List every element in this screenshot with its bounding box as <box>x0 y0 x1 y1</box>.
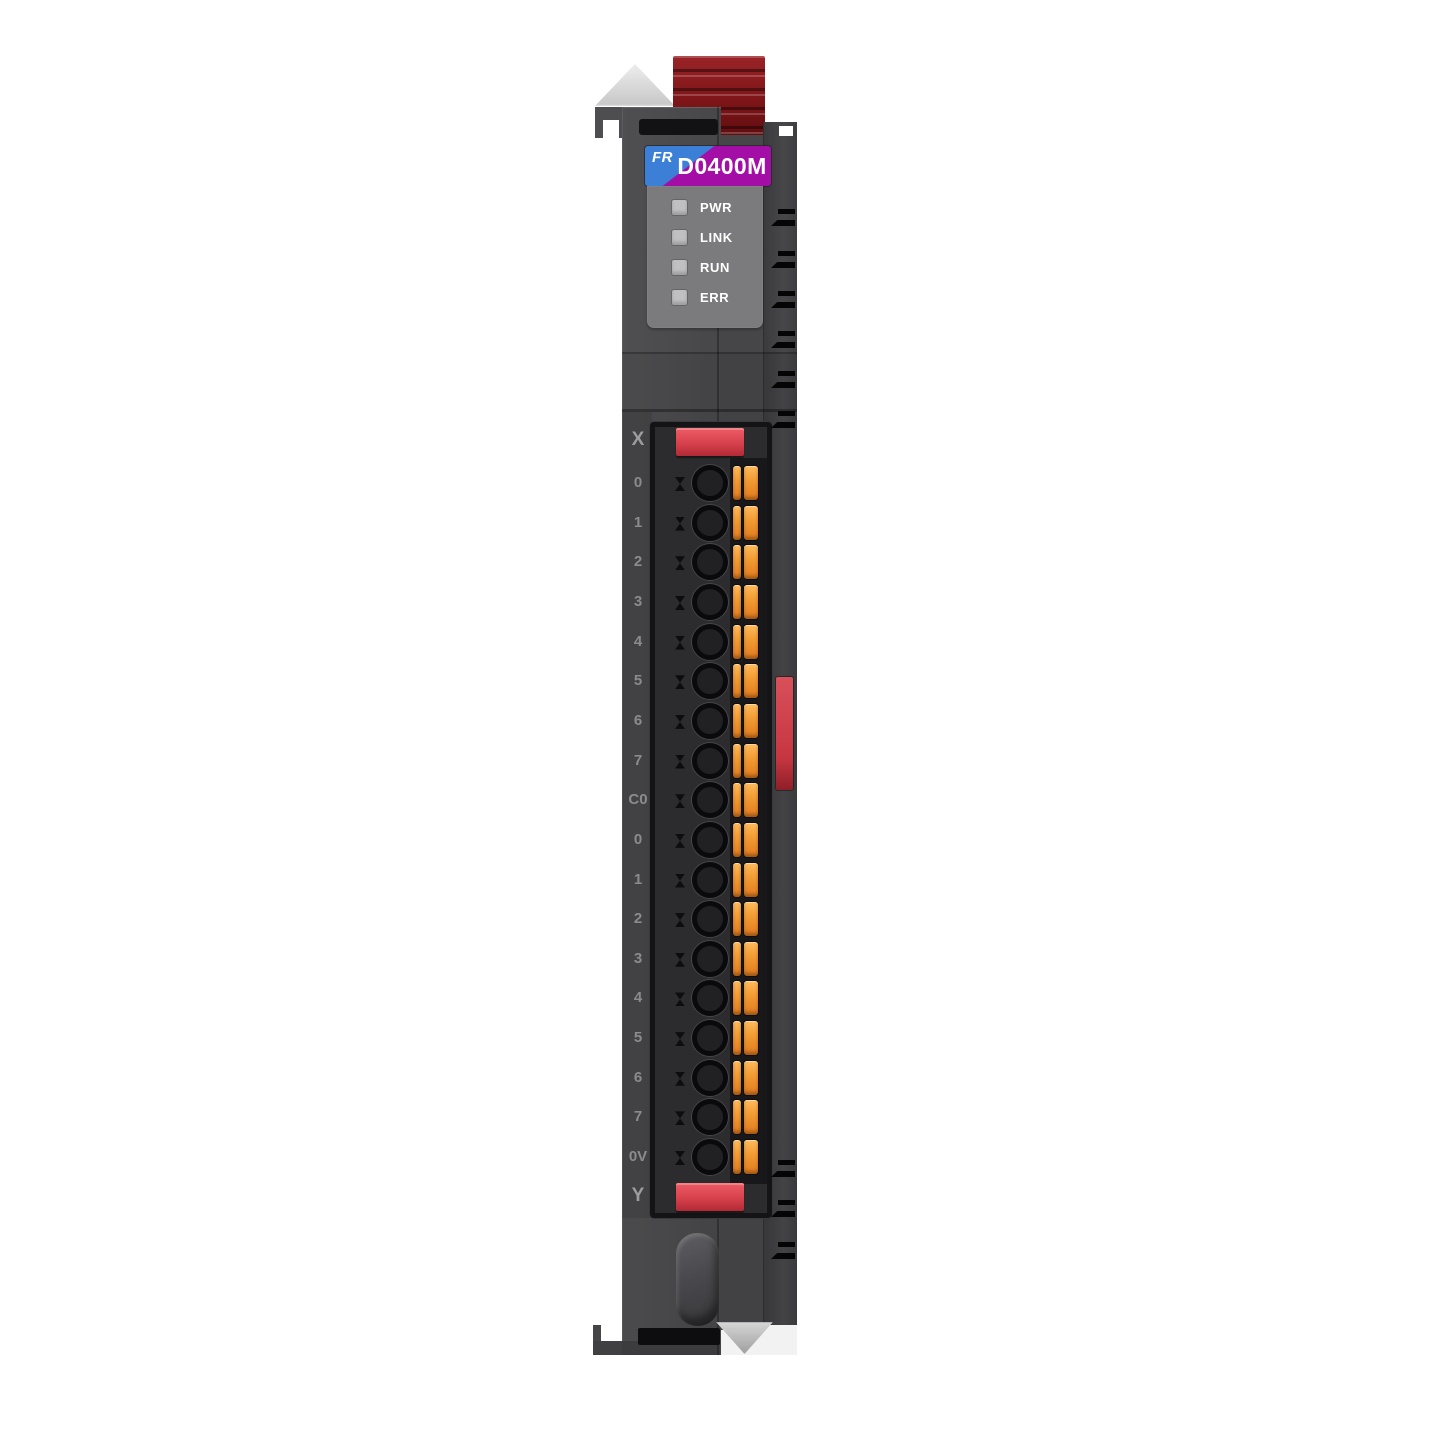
wire-lever-wide <box>744 625 758 659</box>
wire-lever-narrow <box>733 1140 741 1174</box>
wire-lever-wide <box>744 1061 758 1095</box>
terminal-hole <box>692 743 728 779</box>
wire-lever-wide <box>744 664 758 698</box>
wire-lever-wide <box>744 783 758 817</box>
vent-slot <box>778 251 795 256</box>
wire-lever-narrow <box>733 783 741 817</box>
wire-lever-narrow <box>733 506 741 540</box>
terminal-hole <box>692 584 728 620</box>
wire-lever-wide <box>744 1140 758 1174</box>
vent-slot <box>778 371 795 376</box>
terminal-clip-top <box>676 428 744 456</box>
wire-lever-narrow <box>733 466 741 500</box>
wire-lever-narrow <box>733 823 741 857</box>
wire-lever-narrow <box>733 981 741 1015</box>
input-section-label: X <box>624 429 652 451</box>
terminal-label: 6 <box>624 1068 652 1088</box>
terminal-clip-bottom <box>676 1183 744 1211</box>
terminal-hole <box>692 782 728 818</box>
terminal-hole <box>692 941 728 977</box>
led-indicator <box>672 230 687 245</box>
locking-lever <box>676 1233 719 1326</box>
terminal-hole <box>692 862 728 898</box>
led-row: ERR <box>647 290 763 306</box>
vent-slot <box>778 1160 795 1165</box>
brand-label: FR <box>652 149 673 166</box>
wire-lever-narrow <box>733 1061 741 1095</box>
wire-lever-narrow <box>733 664 741 698</box>
terminal-label: 3 <box>624 949 652 969</box>
wire-lever-wide <box>744 981 758 1015</box>
vent-slot <box>778 291 795 296</box>
led-indicator <box>672 290 687 305</box>
bottom-left-notch <box>601 1325 622 1341</box>
wire-lever-wide <box>744 704 758 738</box>
terminal-label: 3 <box>624 592 652 612</box>
terminal-label: 4 <box>624 988 652 1008</box>
wire-lever-wide <box>744 1021 758 1055</box>
terminal-label: 7 <box>624 751 652 771</box>
wire-lever-narrow <box>733 1100 741 1134</box>
plc-io-module-render: FR D0400M PWRLINKRUNERR X Y 01234567C001… <box>0 0 1440 1440</box>
terminal-label-column <box>622 412 652 1218</box>
led-label: RUN <box>700 260 730 275</box>
wire-lever-wide <box>744 863 758 897</box>
terminal-hole <box>692 901 728 937</box>
terminal-hole <box>692 1139 728 1175</box>
terminal-label: C0 <box>624 790 652 810</box>
wire-lever-wide <box>744 545 758 579</box>
bottom-vent-slot <box>638 1328 720 1345</box>
terminal-hole <box>692 703 728 739</box>
top-left-notch <box>603 120 619 138</box>
wire-lever-wide <box>744 506 758 540</box>
wire-lever-wide <box>744 942 758 976</box>
terminal-hole <box>692 1060 728 1096</box>
wire-lever-wide <box>744 902 758 936</box>
wire-lever-narrow <box>733 863 741 897</box>
led-row: RUN <box>647 260 763 276</box>
terminal-hole <box>692 822 728 858</box>
output-section-label: Y <box>624 1185 652 1207</box>
model-name-plate: FR D0400M <box>645 146 771 186</box>
terminal-label: 2 <box>624 552 652 572</box>
terminal-label: 0 <box>624 830 652 850</box>
terminal-hole <box>692 624 728 660</box>
led-label: ERR <box>700 290 729 305</box>
led-label: LINK <box>700 230 733 245</box>
led-indicator <box>672 200 687 215</box>
terminal-hole <box>692 505 728 541</box>
vent-slot <box>778 1200 795 1205</box>
vent-slot <box>778 331 795 336</box>
wire-lever-wide <box>744 466 758 500</box>
led-row: LINK <box>647 230 763 246</box>
wire-lever-narrow <box>733 585 741 619</box>
top-right-notch <box>779 126 793 136</box>
wire-lever-narrow <box>733 704 741 738</box>
top-shadow-arrow <box>595 64 675 106</box>
wire-lever-wide <box>744 823 758 857</box>
vent-slot <box>778 1242 795 1247</box>
wire-lever-narrow <box>733 1021 741 1055</box>
terminal-label: 6 <box>624 711 652 731</box>
led-indicator <box>672 260 687 275</box>
wire-lever-narrow <box>733 902 741 936</box>
led-label: PWR <box>700 200 732 215</box>
case-seam-horizontal-1 <box>622 352 797 354</box>
terminal-label: 4 <box>624 632 652 652</box>
release-tab <box>776 677 793 790</box>
led-row: PWR <box>647 200 763 216</box>
wire-lever-narrow <box>733 625 741 659</box>
terminal-label: 5 <box>624 671 652 691</box>
terminal-label: 2 <box>624 909 652 929</box>
top-vent-slot <box>639 119 718 135</box>
terminal-label: 5 <box>624 1028 652 1048</box>
wire-lever-narrow <box>733 744 741 778</box>
wire-lever-wide <box>744 744 758 778</box>
terminal-label: 0 <box>624 473 652 493</box>
terminal-hole <box>692 1020 728 1056</box>
model-label: D0400M <box>675 146 769 186</box>
status-led-panel: PWRLINKRUNERR <box>647 186 763 328</box>
terminal-label: 0V <box>624 1147 652 1167</box>
wire-lever-narrow <box>733 942 741 976</box>
wire-lever-narrow <box>733 545 741 579</box>
terminal-label: 1 <box>624 513 652 533</box>
wire-lever-wide <box>744 1100 758 1134</box>
terminal-hole <box>692 465 728 501</box>
vent-slot <box>778 209 795 214</box>
wire-lever-wide <box>744 585 758 619</box>
terminal-hole <box>692 663 728 699</box>
terminal-label: 1 <box>624 870 652 890</box>
vent-slot <box>778 411 795 416</box>
terminal-label: 7 <box>624 1107 652 1127</box>
